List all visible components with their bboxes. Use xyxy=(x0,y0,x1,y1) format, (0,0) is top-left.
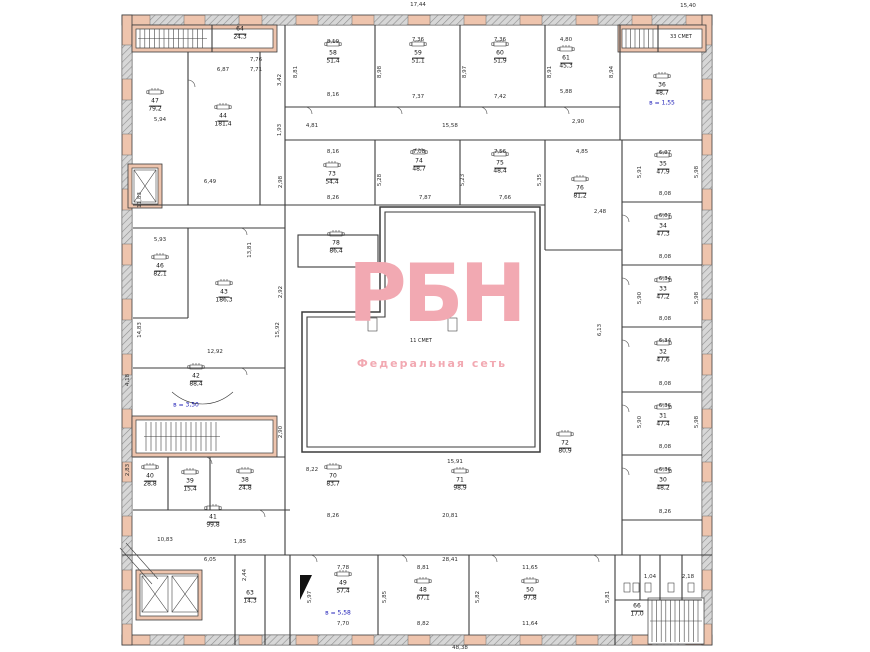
room-label: 3048,2 xyxy=(656,478,669,493)
dimension-label: 7,56 xyxy=(494,149,506,155)
room-label: 7280,9 xyxy=(558,441,571,456)
dimension-label: 11,64 xyxy=(522,621,538,627)
dimension-label: 8,16 xyxy=(327,149,339,155)
dimension-label: 15,58 xyxy=(442,123,458,129)
toilet-fixtures xyxy=(624,583,694,592)
dimension-label: 5,93 xyxy=(154,237,166,243)
dimension-label: 11,65 xyxy=(522,565,538,571)
dimension-label: 8,08 xyxy=(659,381,671,387)
dimension-label: 5,90 xyxy=(637,416,643,428)
room-label: 6617,0 xyxy=(630,604,643,619)
dimension-label: 8,94 xyxy=(609,66,615,78)
dimension-label: 17,44 xyxy=(410,2,426,8)
dimension-label: 7,66 xyxy=(499,195,511,201)
dimension-label: 2,18 xyxy=(682,574,694,580)
room-label: 4199,8 xyxy=(206,515,219,530)
height-note: в = 3,50 xyxy=(173,402,199,409)
dimension-label: 13,81 xyxy=(247,242,253,258)
desk-icon xyxy=(215,103,231,109)
desk-icon xyxy=(415,577,431,583)
dimension-label: 4,18 xyxy=(125,374,131,386)
dimension-label: 7,87 xyxy=(419,195,431,201)
room-label: 6051,9 xyxy=(493,51,506,66)
room-label: 3147,4 xyxy=(656,414,669,429)
dimension-label: 6,34 xyxy=(659,338,671,344)
dimension-label: 8,19 xyxy=(327,39,339,45)
dimension-label: 5,23 xyxy=(460,174,466,186)
dimension-label: 2,44 xyxy=(242,569,248,581)
room-label: 4779,2 xyxy=(148,99,161,114)
dimension-label: 1,85 xyxy=(234,539,246,545)
watermark-logo: РБН xyxy=(348,252,518,336)
room-label: 44181,4 xyxy=(214,114,231,129)
dimension-label: 6,34 xyxy=(659,276,671,282)
room-label: 6314,3 xyxy=(243,591,256,606)
desk-icon xyxy=(152,253,168,259)
dimension-label: 8,82 xyxy=(417,621,429,627)
dimension-label: 8,26 xyxy=(327,195,339,201)
dimension-label: 7,37 xyxy=(412,94,424,100)
dimension-label: 5,94 xyxy=(154,117,166,123)
dimension-label: 8,98 xyxy=(377,66,383,78)
height-note: в = 1,55 xyxy=(649,100,675,107)
desk-icon xyxy=(557,430,573,436)
desk-icon xyxy=(324,161,340,167)
dimension-label: 7,76 xyxy=(250,57,262,63)
dimension-label: 8,08 xyxy=(659,316,671,322)
dimension-label: 8,26 xyxy=(659,509,671,515)
desk-icon xyxy=(572,175,588,181)
room-label: 3347,2 xyxy=(656,287,669,302)
dimension-label: 5,85 xyxy=(382,591,388,603)
room-label: 5951,1 xyxy=(411,51,424,66)
dimension-label: 7,70 xyxy=(337,621,349,627)
dimension-label: 8,26 xyxy=(327,513,339,519)
dimension-label: 8,81 xyxy=(293,66,299,78)
dimension-label: 2,90 xyxy=(278,426,284,438)
dimension-label: 10,83 xyxy=(157,537,173,543)
dimension-label: 48,38 xyxy=(452,645,468,651)
desk-icon xyxy=(237,467,253,473)
dimension-label: 3,42 xyxy=(277,74,283,86)
annotation-label: 33 СМЕТ xyxy=(670,34,692,40)
dimension-label: 8,08 xyxy=(659,254,671,260)
room-label: 5097,8 xyxy=(523,588,536,603)
dimension-label: 6,36 xyxy=(659,467,671,473)
room-label: 3247,6 xyxy=(656,350,669,365)
room-label: 6424,3 xyxy=(233,27,246,42)
dimension-label: 5,35 xyxy=(537,174,543,186)
dimension-label: 6,07 xyxy=(659,213,671,219)
dimension-label: 2,83 xyxy=(125,464,131,476)
desk-icon xyxy=(147,88,163,94)
dimension-label: 4,81 xyxy=(306,123,318,129)
dimension-label: 12,92 xyxy=(207,349,223,355)
dimension-label: 7,36 xyxy=(494,37,506,43)
room-label: 3648,7 xyxy=(655,83,668,98)
desk-icon xyxy=(142,463,158,469)
dimension-label: 5,90 xyxy=(637,292,643,304)
dimension-label: 8,97 xyxy=(462,66,468,78)
dimension-label: 2,48 xyxy=(594,209,606,215)
dimension-label: 6,07 xyxy=(659,150,671,156)
dimension-label: 4,85 xyxy=(576,149,588,155)
dimension-label: 5,98 xyxy=(694,416,700,428)
dimension-label: 20,81 xyxy=(442,513,458,519)
desk-icon xyxy=(452,467,468,473)
room-label: 4957,4 xyxy=(336,581,349,596)
dimension-label: 7,78 xyxy=(337,565,349,571)
desk-icon xyxy=(182,468,198,474)
dimension-label: 6,49 xyxy=(204,179,216,185)
dimension-label: 4,80 xyxy=(560,37,572,43)
dimension-label: 6,13 xyxy=(597,324,603,336)
dimension-label: 5,28 xyxy=(377,174,383,186)
room-label: 4028,8 xyxy=(143,474,156,489)
dimension-label: 7,42 xyxy=(494,94,506,100)
dimension-label: 5,98 xyxy=(694,292,700,304)
dimension-label: 2,92 xyxy=(278,286,284,298)
desk-icon xyxy=(522,577,538,583)
room-label: 4682,1 xyxy=(153,264,166,279)
desk-icon xyxy=(654,72,670,78)
dimension-label: 8,81 xyxy=(417,565,429,571)
desk-icon xyxy=(205,504,221,510)
dimension-label: 7,71 xyxy=(250,67,262,73)
dimension-label: 8,16 xyxy=(327,92,339,98)
dimension-label: 6,05 xyxy=(204,557,216,563)
dimension-label: 5,97 xyxy=(307,591,313,603)
dimension-label: 8,08 xyxy=(659,444,671,450)
desk-icon xyxy=(216,279,232,285)
dimension-label: 1,04 xyxy=(644,574,656,580)
room-label: 6145,3 xyxy=(559,56,572,71)
dimension-label: 2,98 xyxy=(278,176,284,188)
room-label: 43186,3 xyxy=(215,290,232,305)
height-note: в = 5,58 xyxy=(325,610,351,617)
dimension-label: 15,92 xyxy=(275,322,281,338)
room-label: 7083,7 xyxy=(326,474,339,489)
dimension-label: 5,88 xyxy=(560,89,572,95)
watermark-tagline: Федеральная сеть xyxy=(342,357,522,370)
dimension-label: 8,22 xyxy=(306,467,318,473)
dimension-label: 15,91 xyxy=(447,459,463,465)
dimension-label: 6,36 xyxy=(659,403,671,409)
room-label: 4867,1 xyxy=(416,588,429,603)
room-label: 4288,4 xyxy=(189,374,202,389)
room-label: 7354,4 xyxy=(325,172,338,187)
dimension-label: 7,08 xyxy=(413,149,425,155)
dimension-label: 7,36 xyxy=(412,37,424,43)
room-label: 7198,9 xyxy=(453,478,466,493)
dimension-label: 14,83 xyxy=(137,322,143,338)
dimension-label: 5,91 xyxy=(637,166,643,178)
dimension-label: 1,93 xyxy=(277,124,283,136)
room-label: 3915,4 xyxy=(183,479,196,494)
dimension-label: 28,41 xyxy=(442,557,458,563)
room-label: 3447,3 xyxy=(656,224,669,239)
room-label: 7448,7 xyxy=(412,159,425,174)
dimension-label: 8,91 xyxy=(547,66,553,78)
dimension-label: 5,81 xyxy=(605,591,611,603)
dimension-label: 15,40 xyxy=(680,3,696,9)
room-label: 3824,8 xyxy=(238,478,251,493)
dimension-label: 11,83 xyxy=(137,192,143,208)
dimension-label: 2,90 xyxy=(572,119,584,125)
room-label: 5851,4 xyxy=(326,51,339,66)
desk-icon xyxy=(558,45,574,51)
room-label: 7548,4 xyxy=(493,161,506,176)
desk-icon xyxy=(325,463,341,469)
room-label: 3547,9 xyxy=(656,162,669,177)
room-label: 7681,2 xyxy=(573,186,586,201)
floor-plan-canvas: РБН Федеральная сеть 6424,35851,45951,16… xyxy=(0,0,870,652)
room-label: 7886,4 xyxy=(329,241,342,256)
dimension-label: 6,87 xyxy=(217,67,229,73)
dimension-label: 8,08 xyxy=(659,191,671,197)
dimension-label: 5,82 xyxy=(475,591,481,603)
dimension-label: 5,98 xyxy=(694,166,700,178)
